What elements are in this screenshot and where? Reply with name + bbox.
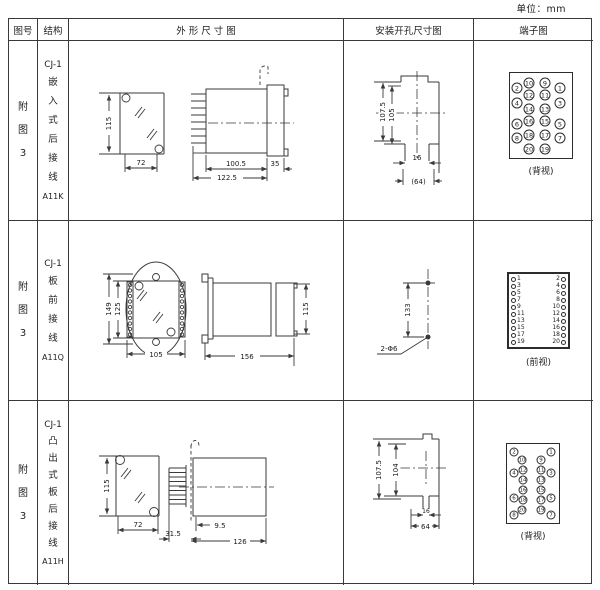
unit-note: 单位：mm: [516, 1, 566, 15]
terminal-circle: [511, 298, 516, 303]
row3-terminal-cell: 2110912114314131615181765201987 (背视): [474, 401, 593, 585]
row2-structure: CJ-1 板前接线 A11Q: [38, 221, 69, 401]
row3-fig-no: 附图3: [9, 401, 38, 585]
terminal-10: 10: [524, 78, 535, 89]
terminal-5: 5: [555, 119, 566, 130]
terminal-circle: [511, 319, 516, 324]
row2-outline-cell: 149 125 105: [69, 221, 344, 401]
terminal-circle: [561, 284, 566, 289]
terminal-2: 2: [512, 83, 523, 94]
terminal-circle: [561, 291, 566, 296]
row3-dim-107-5: 107.5: [375, 460, 383, 480]
row2-dim-105: 105: [149, 351, 162, 359]
terminal-16: 16: [519, 486, 528, 495]
terminal-circle: [511, 340, 516, 345]
row3-structure: CJ-1 凸出式板后接线 A11H: [38, 401, 69, 585]
terminal-circle: [561, 333, 566, 338]
row1-code: A11K: [43, 192, 64, 201]
row3-front-view: 115 72: [99, 456, 159, 535]
row3-dim-9-5: 9.5: [214, 522, 225, 530]
terminal-9: 9: [540, 78, 551, 89]
terminal-circle: [561, 277, 566, 282]
row1-dim-107-5: 107.5: [379, 102, 387, 122]
terminal-17: 17: [540, 130, 551, 141]
terminal-12: 12: [524, 90, 535, 101]
header-outline-label: 外 形 尺 寸 图: [176, 23, 236, 37]
row3-terminal-box: 2110912114314131615181765201987: [506, 443, 560, 524]
terminal-2: 2: [510, 448, 519, 457]
row1-install-drawing: 107.5 105 16 (64): [344, 41, 474, 221]
terminal-circle: [511, 333, 516, 338]
row1-dim-100-5: 100.5: [226, 160, 246, 168]
terminal-7: 7: [555, 133, 566, 144]
row3-dim-126: 126: [233, 538, 247, 546]
terminal-1: 1: [555, 83, 566, 94]
row3-terminal-view-label: (背视): [506, 529, 560, 542]
row1-dim-35: 35: [271, 160, 280, 168]
terminal-12: 12: [519, 466, 528, 475]
row3-fig-label: 附图3: [16, 459, 30, 528]
terminal-15: 15: [540, 116, 551, 127]
row1-dim-16: 16: [413, 154, 422, 162]
row2-dim-149: 149: [105, 302, 113, 315]
terminal-circle: [561, 305, 566, 310]
terminal-8: 8: [510, 511, 519, 520]
header-fig-no-label: 图号: [13, 23, 32, 37]
row2-terminal-view-label: (前视): [507, 355, 570, 368]
row1-desc: 嵌入式后接线: [47, 73, 59, 187]
terminal-18: 18: [524, 130, 535, 141]
row1-terminal-box: 1092112114314131615651817872019: [509, 72, 573, 159]
row2-dim-156: 156: [240, 353, 254, 361]
terminal-circle: [511, 312, 516, 317]
terminal-3: 3: [555, 98, 566, 109]
row1-terminal-view-label: (背视): [509, 164, 573, 177]
row2-fig-no: 附图3: [9, 221, 38, 401]
row2-terminal-cell: 1234567891011121314151617181920 (前视): [474, 221, 593, 401]
header-install-label: 安装开孔尺寸图: [375, 23, 442, 37]
header-structure-label: 结构: [43, 23, 62, 37]
row1-dim-105: 105: [388, 108, 396, 121]
terminal-18: 18: [519, 496, 528, 505]
row3-outline-drawing: 115 72 9.5: [69, 401, 344, 585]
header-terminal: 端子图: [474, 19, 593, 41]
terminal-pair-row: 1920: [511, 339, 566, 345]
header-terminal-label: 端子图: [519, 23, 548, 37]
spec-table: 图号 结构 外 形 尺 寸 图 安装开孔尺寸图 端子图 附图3 CJ-1 嵌入式…: [8, 18, 592, 584]
header-install: 安装开孔尺寸图: [344, 19, 474, 41]
row2-dim-115: 115: [302, 302, 310, 315]
row1-dim-64: (64): [411, 178, 426, 186]
row3-cutout: 107.5 104 16 64: [373, 434, 448, 531]
row3-dim-16: 16: [422, 508, 430, 515]
terminal-1: 1: [547, 448, 556, 457]
terminal-19: 19: [537, 506, 546, 515]
header-structure: 结构: [38, 19, 69, 41]
row1-model: CJ-1: [44, 60, 62, 70]
terminal-6: 6: [512, 119, 523, 130]
terminal-14: 14: [524, 104, 535, 115]
terminal-13: 13: [540, 104, 551, 115]
terminal-circle: [561, 312, 566, 317]
terminal-20: 20: [518, 506, 527, 515]
terminal-number: 19: [517, 339, 530, 345]
terminal-circle: [511, 277, 516, 282]
terminal-14: 14: [519, 476, 528, 485]
terminal-circle: [561, 298, 566, 303]
row3-install-drawing: 107.5 104 16 64: [344, 401, 474, 585]
terminal-10: 10: [518, 456, 527, 465]
terminal-circle: [561, 326, 566, 331]
row2-fig-label: 附图3: [16, 276, 30, 345]
terminal-5: 5: [547, 494, 556, 503]
row2-dim-133: 133: [404, 303, 412, 316]
row2-desc: 板前接线: [47, 272, 59, 348]
row2-install-drawing: 133 2-Φ6: [344, 221, 474, 401]
terminal-circle: [561, 319, 566, 324]
header-fig-no: 图号: [9, 19, 38, 41]
row3-desc: 凸出式板后接线: [47, 433, 59, 552]
terminal-9: 9: [537, 456, 546, 465]
terminal-11: 11: [540, 90, 551, 101]
terminal-circle: [561, 340, 566, 345]
row1-fig-label: 附图3: [16, 96, 30, 165]
terminal-15: 15: [537, 486, 546, 495]
terminal-17: 17: [537, 496, 546, 505]
row2-holes-label: 2-Φ6: [381, 345, 398, 353]
header-outline: 外 形 尺 寸 图: [69, 19, 344, 41]
row2-terminal-box: 1234567891011121314151617181920: [507, 272, 570, 349]
row2-install-cell: 133 2-Φ6: [344, 221, 474, 401]
row3-dim-64: 64: [421, 523, 430, 531]
row3-install-cell: 107.5 104 16 64: [344, 401, 474, 585]
terminal-circle: [511, 305, 516, 310]
terminal-number: 20: [547, 339, 560, 345]
row2-outline-drawing: 149 125 105: [69, 221, 344, 401]
row1-dim-122-5: 122.5: [217, 174, 237, 182]
terminal-13: 13: [537, 476, 546, 485]
terminal-7: 7: [547, 511, 556, 520]
row1-cutout: 107.5 105 16 (64): [374, 71, 446, 186]
terminal-4: 4: [512, 98, 523, 109]
row2-side-view: 115 156: [202, 274, 311, 366]
terminal-16: 16: [524, 116, 535, 127]
terminal-4: 4: [510, 469, 519, 478]
row3-model: CJ-1: [44, 420, 62, 430]
row2-dim-125: 125: [114, 302, 122, 315]
row2-model: CJ-1: [44, 259, 62, 269]
row2-code: A11Q: [42, 353, 64, 362]
row3-dim-115: 115: [103, 479, 111, 492]
row3-code: A11H: [42, 557, 64, 566]
row2-holes: 133 2-Φ6: [377, 269, 435, 354]
terminal-19: 19: [540, 144, 551, 155]
row1-outline-drawing: 115 72: [69, 41, 344, 221]
row1-dim-115: 115: [105, 117, 113, 130]
terminal-circle: [511, 326, 516, 331]
row1-outline-cell: 115 72: [69, 41, 344, 221]
row3-dim-72: 72: [134, 521, 143, 529]
row1-structure: CJ-1 嵌入式后接线 A11K: [38, 41, 69, 221]
terminal-circle: [511, 284, 516, 289]
row1-front-view: 115 72: [99, 93, 164, 172]
terminal-11: 11: [537, 466, 546, 475]
terminal-circle: [511, 291, 516, 296]
terminal-6: 6: [510, 494, 519, 503]
row3-dim-31-5: 31.5: [165, 530, 181, 538]
terminal-8: 8: [512, 133, 523, 144]
row1-terminal-cell: 1092112114314131615651817872019 (背视): [474, 41, 593, 221]
row3-outline-cell: 115 72 9.5: [69, 401, 344, 585]
row2-front-view: 149 125 105: [103, 262, 186, 359]
row3-side-view: 9.5 31.5 126: [159, 440, 274, 546]
row1-fig-no: 附图3: [9, 41, 38, 221]
row1-dim-72: 72: [137, 159, 146, 167]
row3-dim-104: 104: [392, 463, 400, 477]
terminal-20: 20: [524, 144, 535, 155]
terminal-3: 3: [547, 469, 556, 478]
row1-side-view: 100.5 122.5 35: [191, 66, 294, 182]
row1-install-cell: 107.5 105 16 (64): [344, 41, 474, 221]
